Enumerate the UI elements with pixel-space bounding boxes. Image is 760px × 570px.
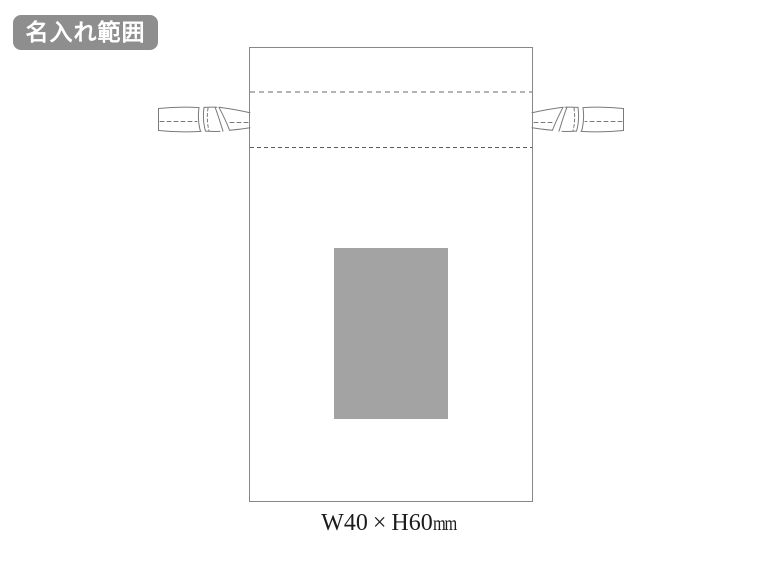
pouch-body-outline (249, 47, 533, 502)
right-drawstring-tie-illustration (531, 104, 625, 134)
dimensions-unit: mm (433, 513, 456, 536)
drawstring-channel-bottom-dashed-line (250, 147, 532, 148)
left-drawstring-tie-illustration (157, 104, 251, 134)
print-area-dimensions-label: W40 × H60mm (249, 510, 533, 537)
print-area-rect (334, 248, 448, 419)
left-tie-knot-wrap-lines (198, 107, 229, 131)
drawstring-channel-top-dashed-line (250, 91, 532, 93)
dimensions-value: W40 × H60 (321, 510, 433, 536)
imprint-area-badge: 名入れ範囲 (13, 15, 158, 50)
imprint-area-diagram: 名入れ範囲 (0, 0, 760, 570)
right-tie-knot-wrap-lines (553, 107, 584, 131)
